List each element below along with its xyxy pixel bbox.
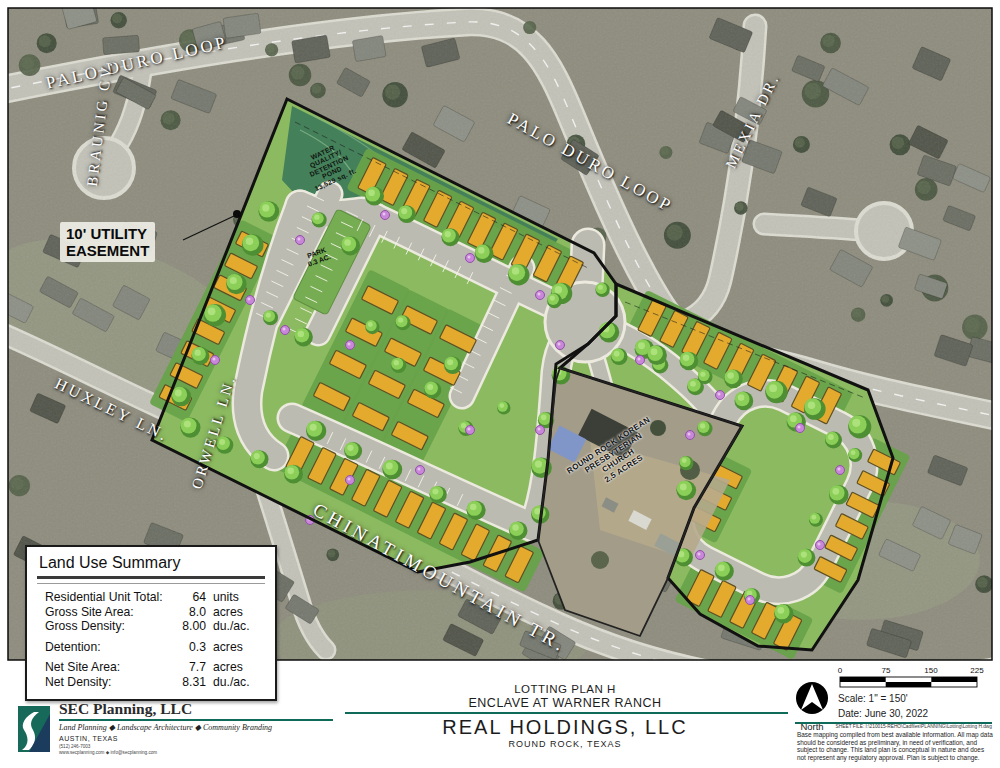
scale-text: Scale: 1" = 150' [838,693,908,704]
firm-city: AUSTIN, TEXAS [59,735,118,742]
project-location: ROUND ROCK, TEXAS [340,739,790,749]
summary-row: Net Density: 8.31 du./ac. [37,675,265,690]
divider-rule [345,712,788,714]
plan-sheet: PALO DURO LOOP BRAUNIG CV. PALO DURO LOO… [0,0,1000,768]
firm-tagline: Land Planning ◆ Landscape Architecture ◆… [59,723,272,732]
scale-tick: 0 [838,666,842,675]
scale-tick: 150 [924,666,937,675]
sheet-file-path: SHEET FILE: I:\210015-REHO\Cadfiles\PLAN… [795,724,992,729]
summary-title: Land Use Summary [39,554,265,572]
divider-rule [59,719,333,721]
firm-phone: (512) 246-7003 [59,744,90,749]
firm-name: SEC Planning, LLC [59,700,192,718]
summary-row: Detention: 0.3 acres [37,640,265,655]
summary-row: Residential Unit Total: 64 units [37,590,265,605]
plan-title: LOTTING PLAN H [340,683,790,695]
easement-marker-dot [233,210,241,218]
easement-line-2: EASEMENT [66,242,149,259]
disclaimer-text: Base mapping compiled from best availabl… [797,731,993,761]
easement-line-1: 10' UTILITY [66,225,149,242]
date-text: Date: June 30, 2022 [838,708,928,719]
utility-easement-label: 10' UTILITY EASEMENT [60,222,155,262]
summary-row: Gross Site Area: 8.0 acres [37,605,265,620]
land-use-summary: Land Use Summary Residential Unit Total:… [25,545,277,701]
summary-row: Net Site Area: 7.7 acres [37,660,265,675]
scale-bar [840,677,977,687]
scale-tick: 225 [970,666,983,675]
client-name: REAL HOLDINGS, LLC [340,716,790,739]
summary-divider [37,576,265,584]
north-arrow-icon [796,682,828,714]
sec-planning-logo [18,706,50,752]
firm-website: www.secplanning.com ◆ info@secplanning.c… [59,750,157,755]
scale-tick: 75 [882,666,891,675]
project-name: ENCLAVE AT WARNER RANCH [340,696,790,710]
summary-row: Gross Density: 8.00 du./ac. [37,619,265,634]
